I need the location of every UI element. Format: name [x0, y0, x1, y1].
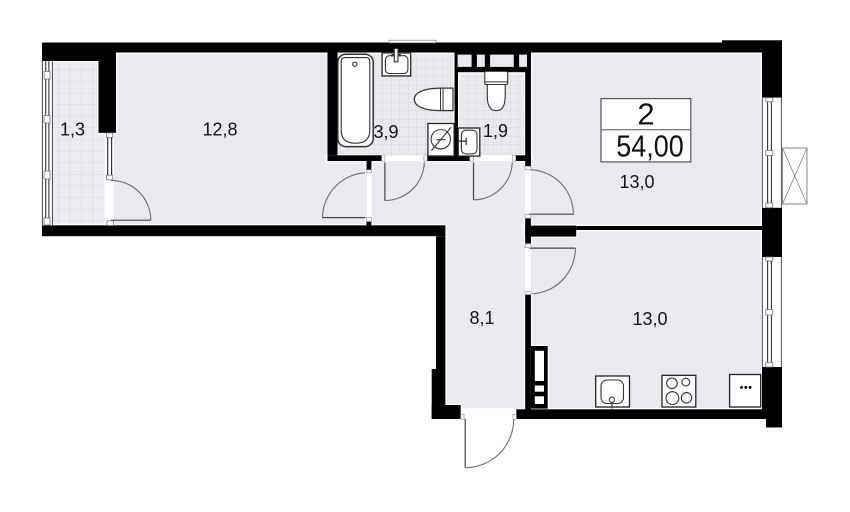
svg-text:8,1: 8,1: [469, 308, 494, 328]
svg-text:13,0: 13,0: [632, 309, 667, 329]
svg-text:54,00: 54,00: [616, 130, 684, 164]
svg-text:3,9: 3,9: [373, 122, 398, 142]
svg-text:2: 2: [637, 97, 654, 132]
svg-text:1,9: 1,9: [483, 121, 508, 141]
svg-text:1,3: 1,3: [60, 120, 85, 140]
svg-text:12,8: 12,8: [202, 120, 237, 140]
svg-text:13,0: 13,0: [619, 172, 654, 192]
